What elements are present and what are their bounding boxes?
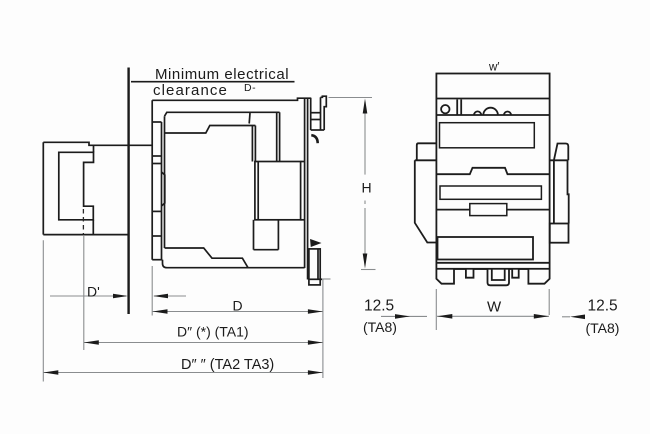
svg-text:12.5: 12.5 (364, 298, 394, 315)
svg-text:clearance: clearance (153, 82, 228, 99)
svg-text:D″ (*) (TA1): D″ (*) (TA1) (177, 324, 249, 340)
svg-text:(TA8): (TA8) (586, 320, 620, 336)
svg-text:H: H (362, 180, 372, 196)
svg-text:(TA8): (TA8) (363, 319, 397, 335)
svg-text:w′: w′ (488, 62, 499, 74)
svg-text:D-: D- (244, 82, 256, 94)
svg-text:D': D' (87, 284, 100, 300)
svg-text:W: W (487, 299, 502, 316)
svg-text:D″ ″ (TA2 TA3): D″ ″ (TA2 TA3) (181, 357, 274, 373)
svg-text:12.5: 12.5 (588, 298, 618, 315)
svg-text:D: D (233, 298, 243, 314)
svg-text:Minimum electrical: Minimum electrical (155, 66, 289, 83)
